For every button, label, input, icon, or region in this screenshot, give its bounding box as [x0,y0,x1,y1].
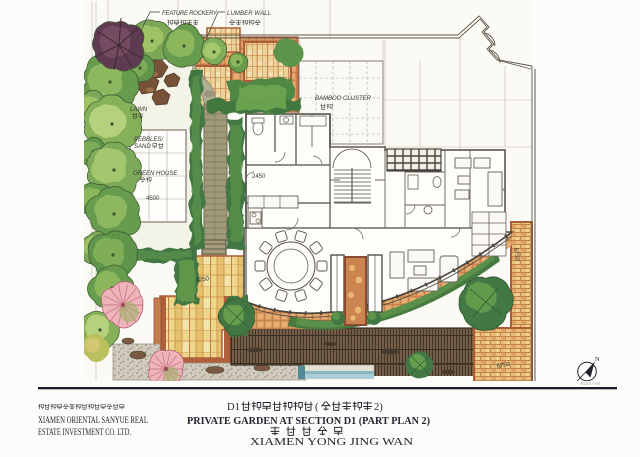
svg-text:D1: D1 [227,402,240,413]
svg-text:2): 2) [374,402,383,413]
svg-text:2450: 2450 [252,174,266,180]
svg-text:LUMBER WALL: LUMBER WALL [227,11,271,17]
svg-text:ESTATE INVESTMENT CO. LTD.: ESTATE INVESTMENT CO. LTD. [38,427,131,437]
svg-text:N: N [595,356,600,363]
svg-text:SAND: SAND [134,144,151,150]
svg-text:BAMBOO CLUSTER: BAMBOO CLUSTER [315,96,372,102]
svg-text:PEBBLES/: PEBBLES/ [134,137,164,143]
svg-text:(: ( [315,402,319,413]
svg-text:B2021-1-09: B2021-1-09 [581,381,600,386]
svg-text:LAWN: LAWN [130,107,148,113]
svg-text:XIAMEN YONG JING WAN: XIAMEN YONG JING WAN [250,436,413,448]
svg-text:GREEN HOUSE: GREEN HOUSE [133,171,178,177]
svg-text:XIAMEN ORIENTAL SANYUE REAL: XIAMEN ORIENTAL SANYUE REAL [38,415,148,425]
svg-text:FEATURE ROCKERY: FEATURE ROCKERY [162,11,218,17]
svg-text:PRIVATE GARDEN AT SECTION D1 (: PRIVATE GARDEN AT SECTION D1 (PART PLAN … [187,415,430,427]
svg-text:4500: 4500 [146,196,160,202]
